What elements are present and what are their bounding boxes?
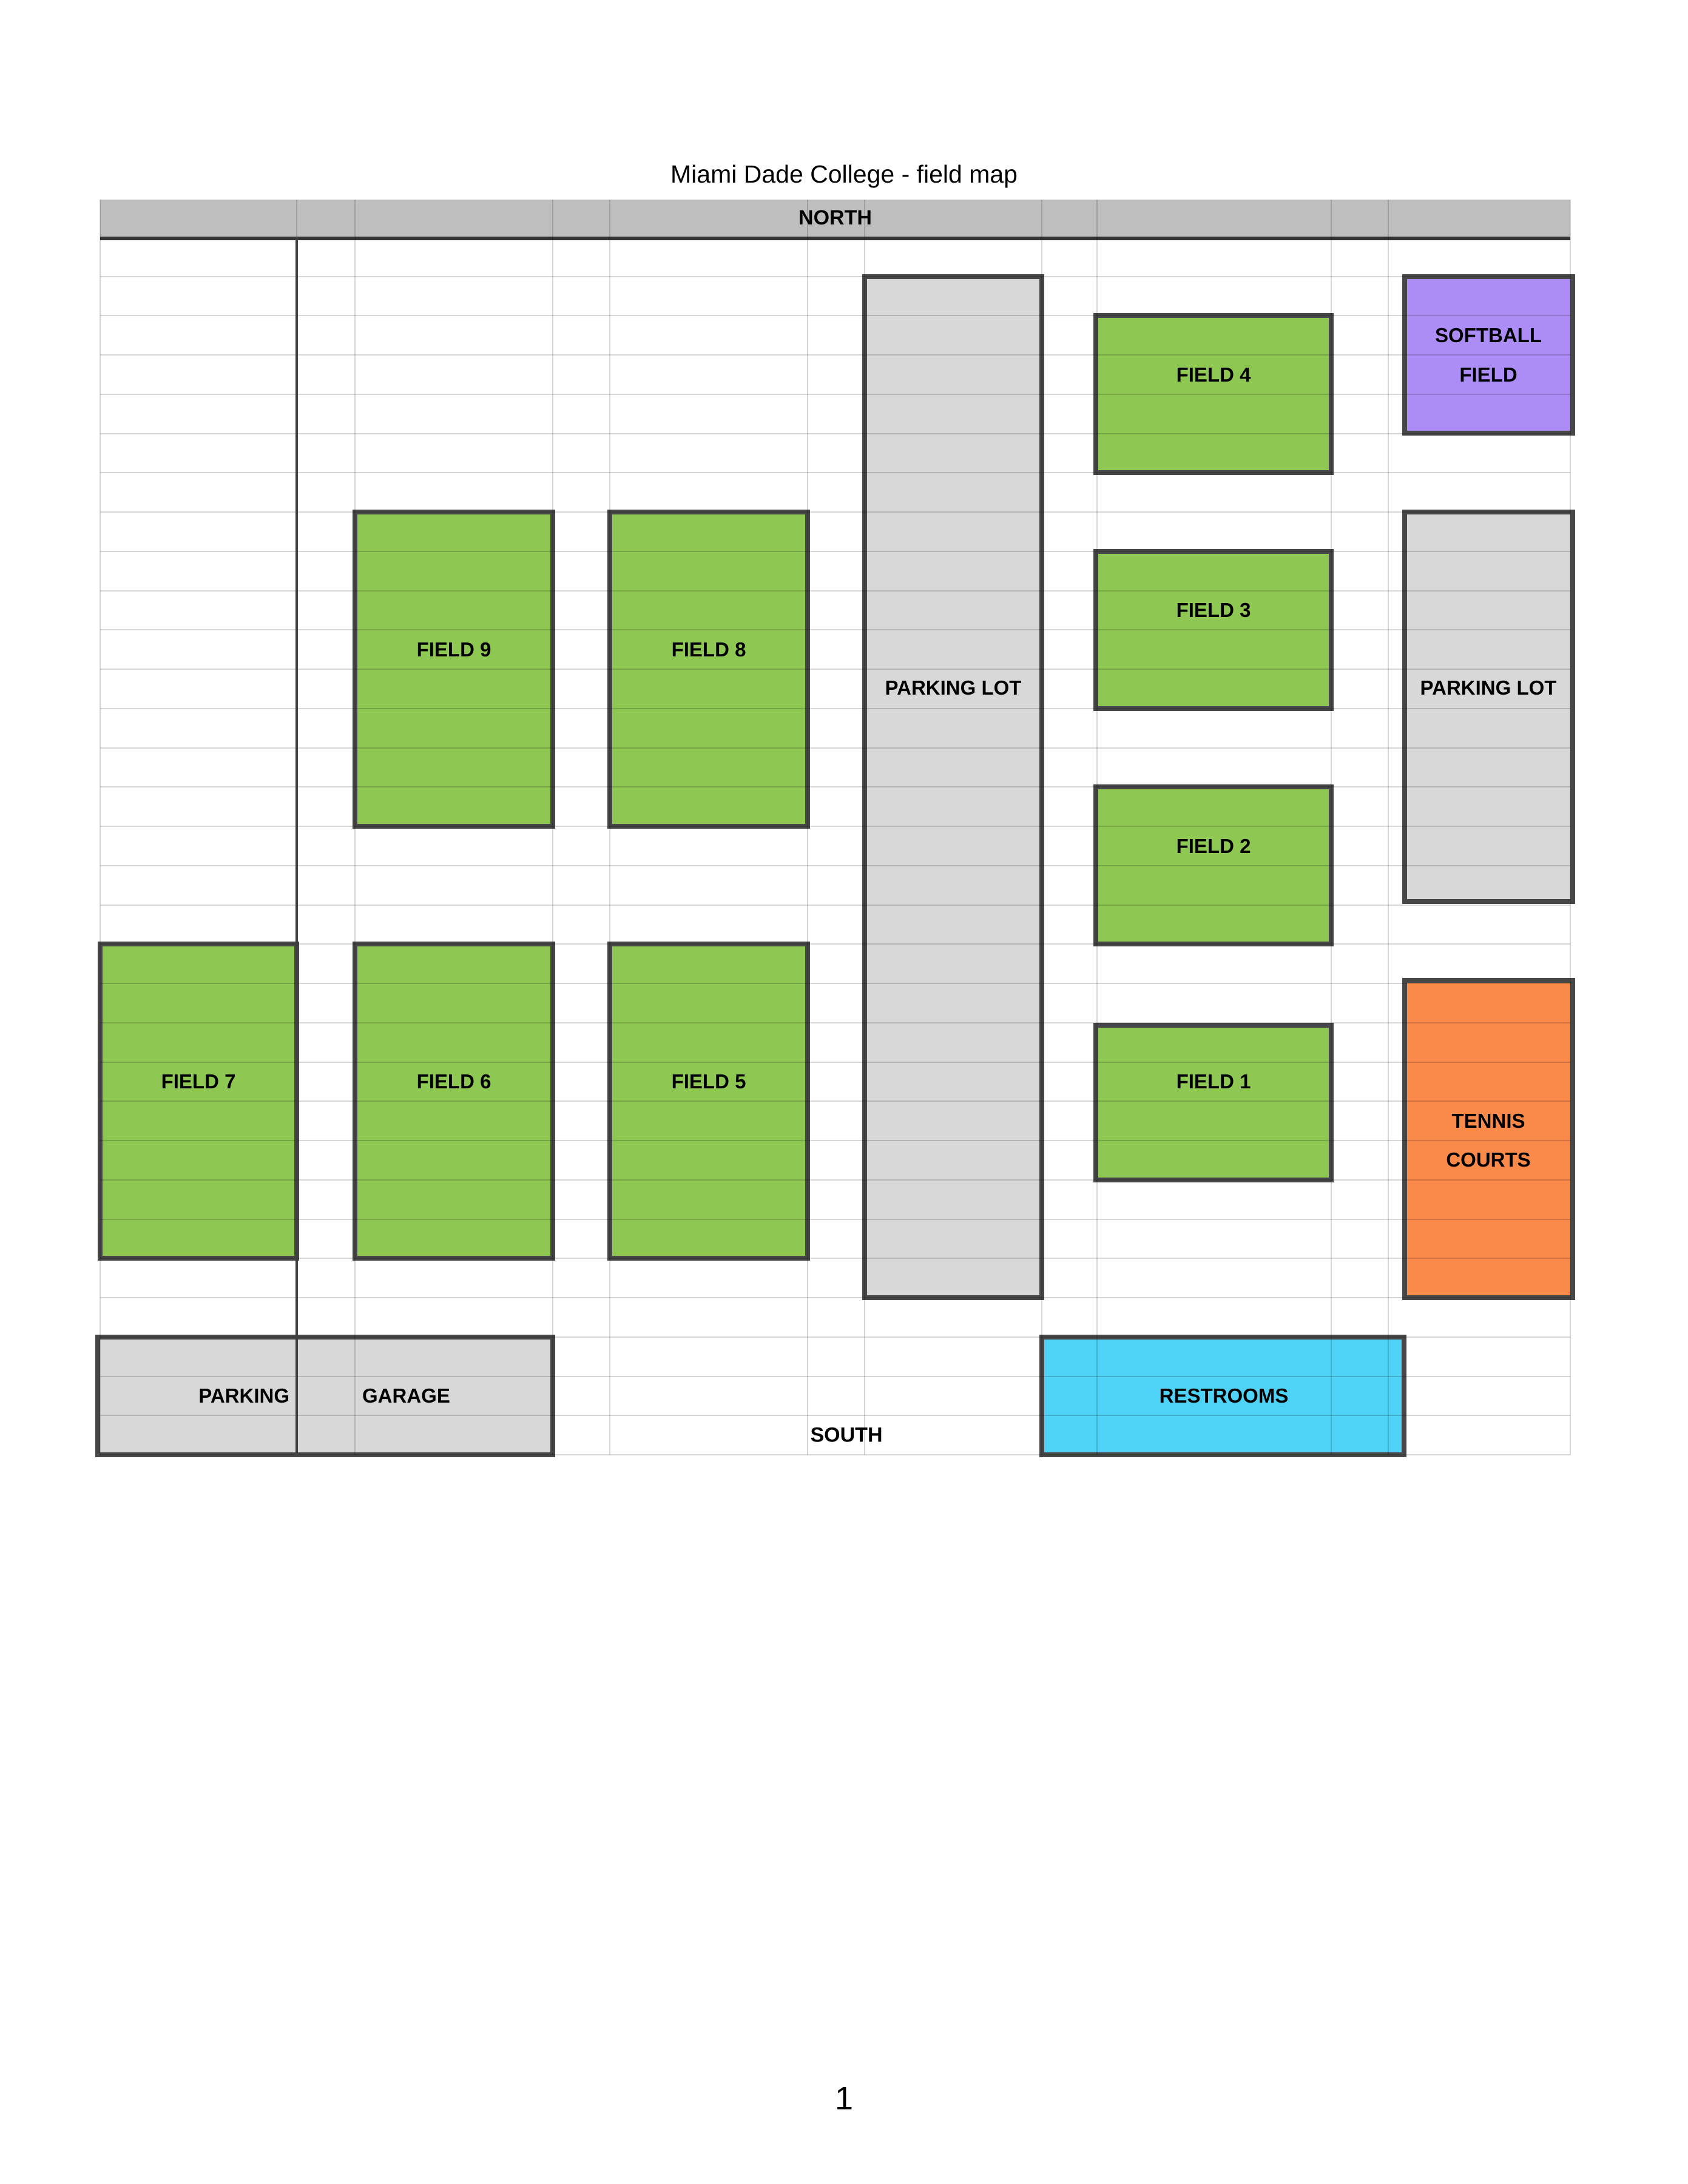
gridline-v-1	[296, 200, 297, 1455]
label-field-8: FIELD 8	[672, 638, 746, 661]
gridline-h-4	[100, 394, 1570, 395]
label-field-5: FIELD 5	[672, 1070, 746, 1093]
label-tennis-line-2: COURTS	[1446, 1148, 1530, 1171]
gridline-h-15	[100, 826, 1570, 827]
page-number: 1	[0, 2080, 1688, 2117]
block-field-2	[1093, 784, 1334, 946]
block-field-4	[1093, 313, 1334, 475]
label-field-1: FIELD 1	[1177, 1070, 1251, 1093]
block-tennis-courts	[1402, 978, 1575, 1300]
south-label: SOUTH	[811, 1424, 883, 1448]
label-field-3: FIELD 3	[1177, 599, 1251, 622]
gridline-h-27	[100, 1297, 1570, 1298]
page-title: Miami Dade College - field map	[0, 160, 1688, 189]
gridline-h-5	[100, 433, 1570, 434]
label-parking-lot-center: PARKING LOT	[885, 676, 1022, 699]
label-parking: PARKING	[198, 1384, 289, 1407]
gridline-h-8	[100, 551, 1570, 552]
block-softball-field	[1402, 274, 1575, 436]
gridline-h-13	[100, 747, 1570, 749]
label-tennis-line-1: TENNIS	[1451, 1110, 1525, 1133]
gridline-h-18	[100, 943, 1570, 945]
printed-page: { "page": { "title": "Miami Dade College…	[0, 0, 1688, 2184]
block-field-6	[353, 942, 555, 1261]
gridline-h-17	[100, 905, 1570, 906]
north-bar: NORTH	[100, 200, 1570, 240]
gridline-h-7	[100, 511, 1570, 513]
label-garage: GARAGE	[362, 1384, 450, 1407]
gridline-h-24	[100, 1179, 1570, 1181]
gridline-h-11	[100, 669, 1570, 670]
label-parking-lot-east: PARKING LOT	[1420, 676, 1557, 699]
north-label: NORTH	[798, 206, 872, 230]
block-parking-garage	[95, 1335, 555, 1457]
label-field-6: FIELD 6	[417, 1070, 491, 1093]
gridline-h-3	[100, 354, 1570, 356]
gridline-h-1	[100, 276, 1570, 277]
label-field-2: FIELD 2	[1177, 835, 1251, 858]
gridline-h-26	[100, 1258, 1570, 1259]
block-field-5	[607, 942, 810, 1261]
gridline-h-14	[100, 786, 1570, 787]
gridline-dark-divider	[295, 237, 298, 1455]
gridline-h-21	[100, 1062, 1570, 1063]
label-field-7: FIELD 7	[161, 1070, 236, 1093]
gridline-h-22	[100, 1100, 1570, 1102]
gridline-h-2	[100, 315, 1570, 316]
gridline-v-10	[1388, 200, 1389, 1455]
block-parking-lot-center	[862, 274, 1044, 1300]
gridline-h-12	[100, 708, 1570, 709]
gridline-h-19	[100, 983, 1570, 984]
block-field-1	[1093, 1023, 1334, 1182]
block-field-7	[98, 942, 299, 1261]
block-field-8	[607, 510, 810, 829]
gridline-h-6	[100, 472, 1570, 473]
gridline-h-16	[100, 865, 1570, 866]
block-parking-lot-east	[1402, 510, 1575, 904]
gridline-h-20	[100, 1022, 1570, 1023]
label-softball-line-1: SOFTBALL	[1435, 324, 1542, 347]
block-field-3	[1093, 549, 1334, 711]
gridline-h-10	[100, 629, 1570, 630]
gridline-h-23	[100, 1140, 1570, 1141]
label-restrooms: RESTROOMS	[1160, 1384, 1289, 1407]
gridline-v-0	[100, 200, 101, 1455]
label-field-9: FIELD 9	[417, 638, 491, 661]
label-field-4: FIELD 4	[1177, 363, 1251, 386]
block-field-9	[353, 510, 555, 829]
label-softball-line-2: FIELD	[1459, 363, 1517, 386]
gridline-h-9	[100, 590, 1570, 591]
gridline-h-25	[100, 1219, 1570, 1220]
